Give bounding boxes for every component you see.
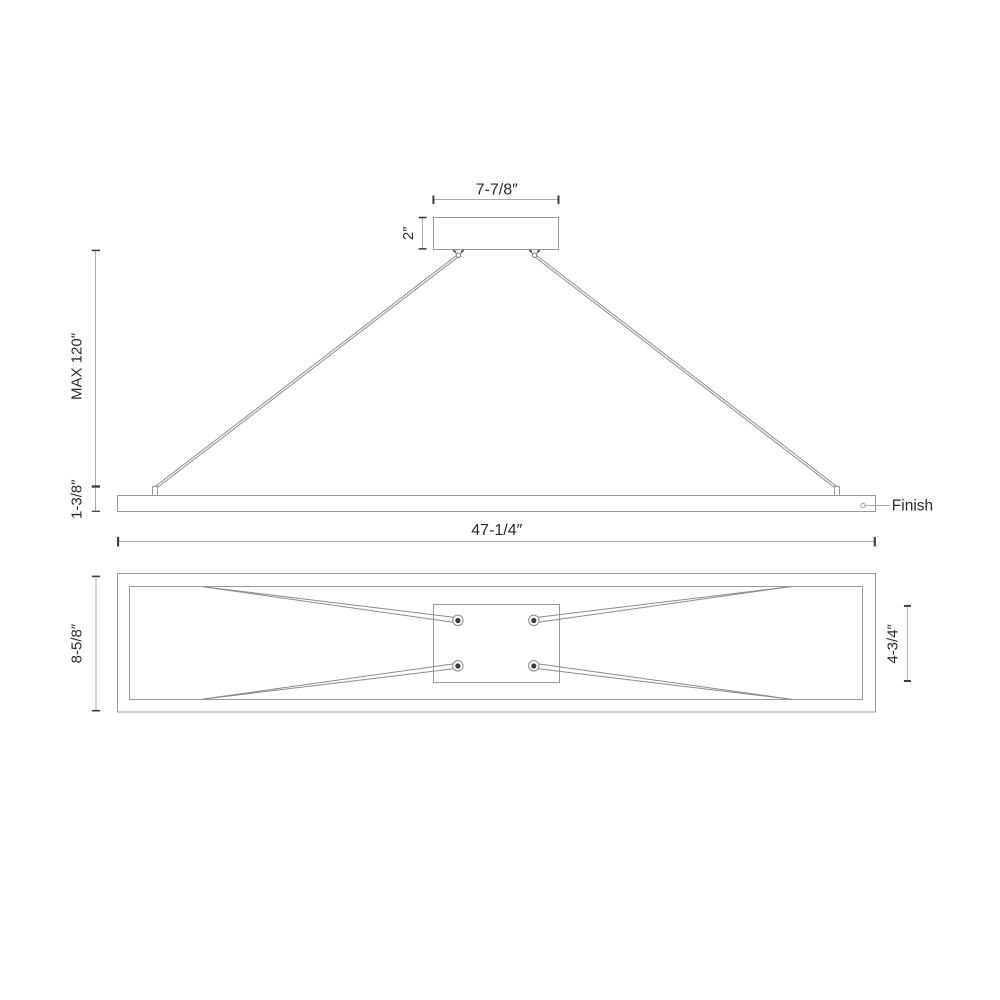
svg-text:7-7/8″: 7-7/8″ [476, 182, 518, 199]
svg-text:Finish: Finish [892, 497, 933, 514]
svg-text:8-5/8″: 8-5/8″ [69, 623, 86, 663]
svg-text:4-3/4″: 4-3/4″ [884, 623, 901, 663]
svg-text:MAX 120″: MAX 120″ [69, 332, 86, 400]
svg-text:47-1/4″: 47-1/4″ [471, 522, 522, 539]
svg-text:2″: 2″ [400, 226, 417, 240]
svg-text:1-3/8″: 1-3/8″ [69, 479, 86, 519]
